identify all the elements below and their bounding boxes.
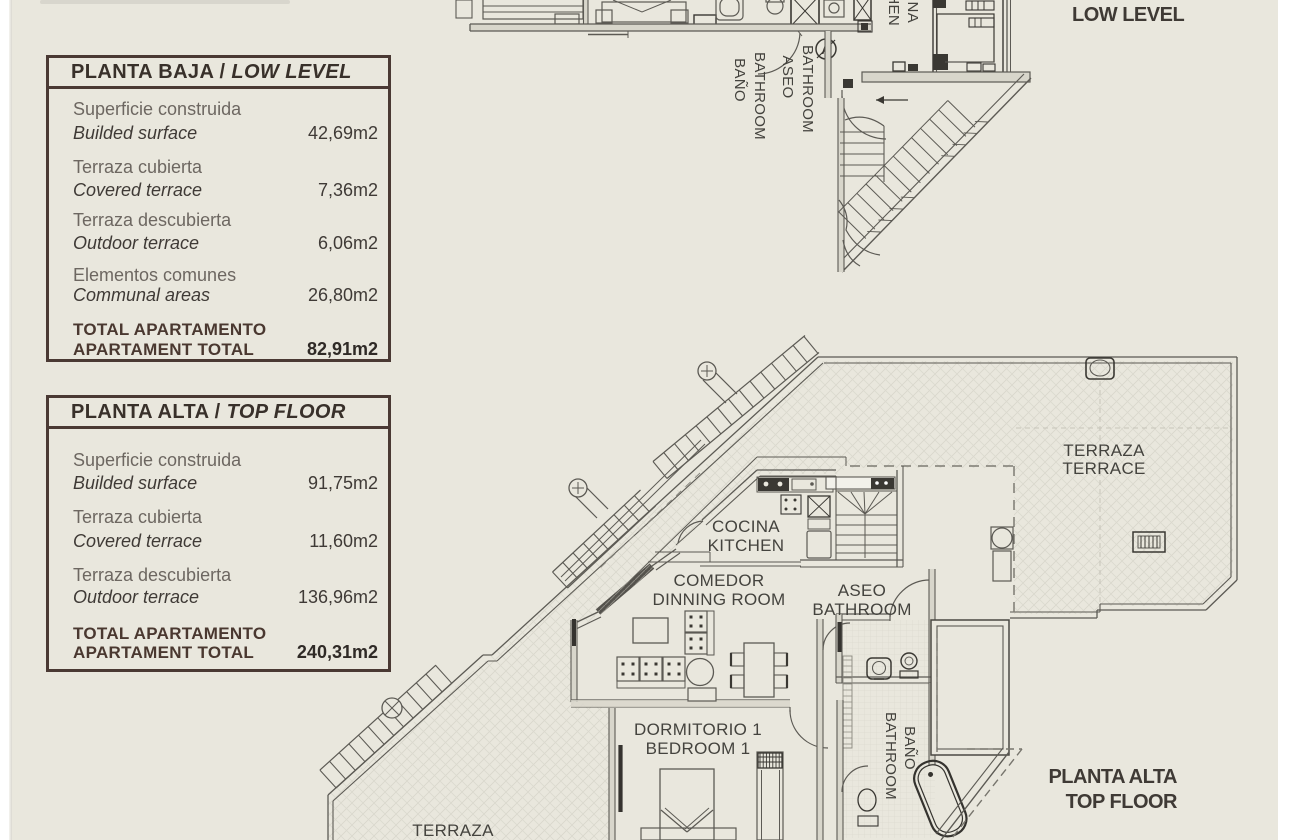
svg-text:BATHROOM: BATHROOM xyxy=(882,712,899,800)
svg-text:TERRACE: TERRACE xyxy=(1062,459,1145,478)
svg-text:BATHROOM: BATHROOM xyxy=(812,600,911,619)
svg-text:BEDROOM 1: BEDROOM 1 xyxy=(646,739,751,758)
svg-text:DINNING ROOM: DINNING ROOM xyxy=(653,590,786,609)
svg-text:COMEDOR: COMEDOR xyxy=(674,571,765,590)
svg-text:ASEO: ASEO xyxy=(838,581,886,600)
svg-text:BAÑO: BAÑO xyxy=(901,726,918,770)
svg-text:PLANTA ALTA: PLANTA ALTA xyxy=(1048,766,1177,788)
svg-text:TERRAZA: TERRAZA xyxy=(1063,441,1145,460)
svg-text:TOP FLOOR: TOP FLOOR xyxy=(1066,791,1178,813)
svg-text:KITCHEN: KITCHEN xyxy=(708,536,785,555)
svg-text:LOW LEVEL: LOW LEVEL xyxy=(1072,4,1184,26)
svg-text:DORMITORIO 1: DORMITORIO 1 xyxy=(634,720,762,739)
svg-text:BATHROOM: BATHROOM xyxy=(799,45,816,133)
svg-text:ASEO: ASEO xyxy=(779,56,796,99)
svg-text:BATHROOM: BATHROOM xyxy=(751,52,768,140)
svg-text:TERRAZA: TERRAZA xyxy=(412,821,494,840)
svg-text:COCINA: COCINA xyxy=(904,0,921,23)
svg-text:BAÑO: BAÑO xyxy=(731,58,748,102)
svg-text:KITCHEN: KITCHEN xyxy=(885,0,902,26)
svg-text:COCINA: COCINA xyxy=(712,517,780,536)
